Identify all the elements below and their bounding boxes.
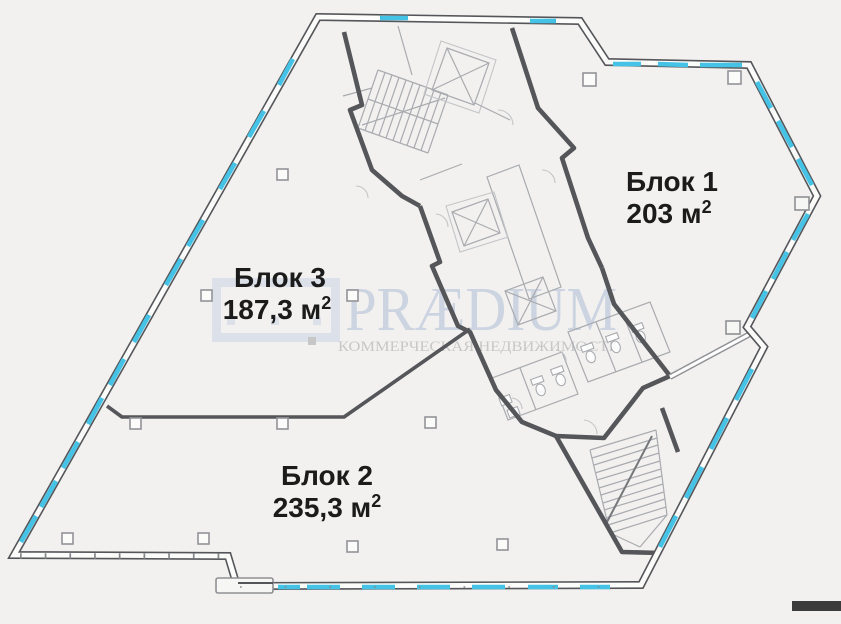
block-1-label: Блок 1 [626,166,718,197]
column-marker [728,71,741,84]
scale-bar [792,601,841,611]
wall-notch [726,321,740,334]
wc-left [492,352,578,420]
block-3-area: 187,3 м2 [223,293,332,325]
column-marker [201,290,212,301]
column-marker [130,418,141,429]
column-marker [277,169,288,180]
floor-plan-page: PRÆDIUM КОММЕРЧЕСКАЯ НЕДВИЖИМОСТЬ [0,0,841,624]
column-marker [497,539,508,550]
block-2-area: 235,3 м2 [273,491,382,523]
column-marker [425,417,436,428]
wall-notch [795,197,809,210]
watermark-brand: PRÆDIUM [345,276,617,344]
watermark-bullet [308,337,316,345]
column-marker [277,418,288,429]
block-1-area: 203 м2 [626,197,711,229]
column-marker [62,533,73,544]
column-marker [347,541,358,552]
block-3-label: Блок 3 [234,262,326,293]
divider-block1-block2 [670,334,750,377]
column-marker [198,533,209,544]
elevator-upper [424,41,496,113]
entrance-stoop [216,578,273,593]
floor-plan-svg: PRÆDIUM КОММЕРЧЕСКАЯ НЕДВИЖИМОСТЬ [0,0,841,624]
stair-lower [590,430,667,547]
block-2-label: Блок 2 [281,460,373,491]
column-marker [583,73,596,86]
column-marker [347,290,358,301]
